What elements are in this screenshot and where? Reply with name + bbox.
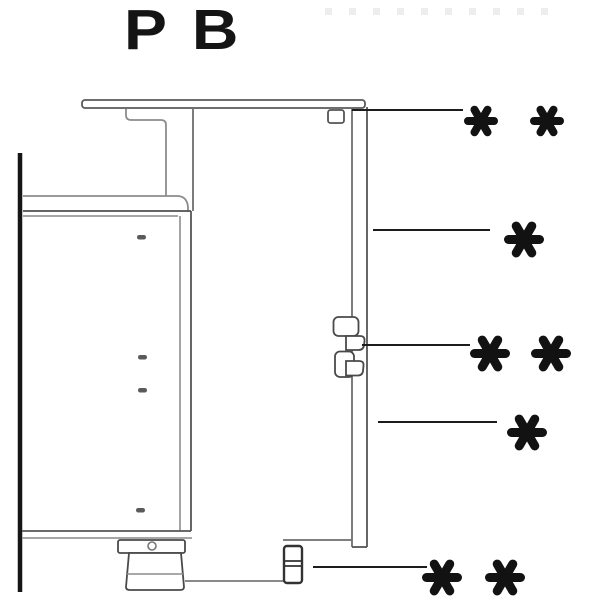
leader-line: [352, 109, 463, 111]
callout-panel-foot: [313, 555, 600, 599]
cabinet-foot: [118, 540, 185, 590]
leader-line: [362, 344, 470, 346]
asterisk-icon: [462, 102, 500, 140]
cabinet-bottom-panel: [22, 531, 192, 538]
asterisk-icon: [502, 217, 546, 261]
panel-foot: [284, 546, 302, 583]
callout-worktop-fixing-clip: [352, 100, 600, 144]
asterisk-symbols: [505, 410, 549, 454]
asterisk-icon: [505, 410, 549, 454]
foot-block: [126, 553, 184, 590]
asterisk-icon: [528, 102, 566, 140]
asterisk-icon: [468, 331, 512, 375]
leader-line: [378, 421, 497, 423]
asterisk-symbols: [462, 102, 566, 140]
cabinet-top-rails: [23, 196, 191, 216]
suspension-bracket: [334, 317, 365, 377]
bracket-lower-hook: [346, 361, 364, 376]
asterisk-symbols: [420, 555, 527, 599]
callout-side-panel-upper: [373, 217, 600, 261]
callout-side-panel-lower: [378, 410, 600, 454]
asterisk-icon: [420, 555, 464, 599]
dotted-guide-line: [325, 8, 548, 15]
asterisk-symbols: [502, 217, 546, 261]
cabinet-side-panel: [180, 211, 191, 531]
top-fixing-clip: [328, 110, 344, 123]
countertop-panel: [82, 100, 365, 108]
support-bracket-line: [126, 109, 166, 196]
callout-suspension-bracket: [362, 331, 600, 375]
foot-screw-hole: [148, 542, 156, 550]
cabinet-cross-section-drawing: [0, 0, 600, 600]
diagram-page: PB: [0, 0, 600, 600]
asterisk-icon: [483, 555, 527, 599]
leader-line: [313, 566, 427, 568]
asterisk-symbols: [468, 331, 573, 375]
bracket-upper-block: [334, 317, 359, 336]
shelf-pin-dots: [136, 235, 147, 513]
asterisk-icon: [529, 331, 573, 375]
leader-line: [373, 229, 490, 231]
